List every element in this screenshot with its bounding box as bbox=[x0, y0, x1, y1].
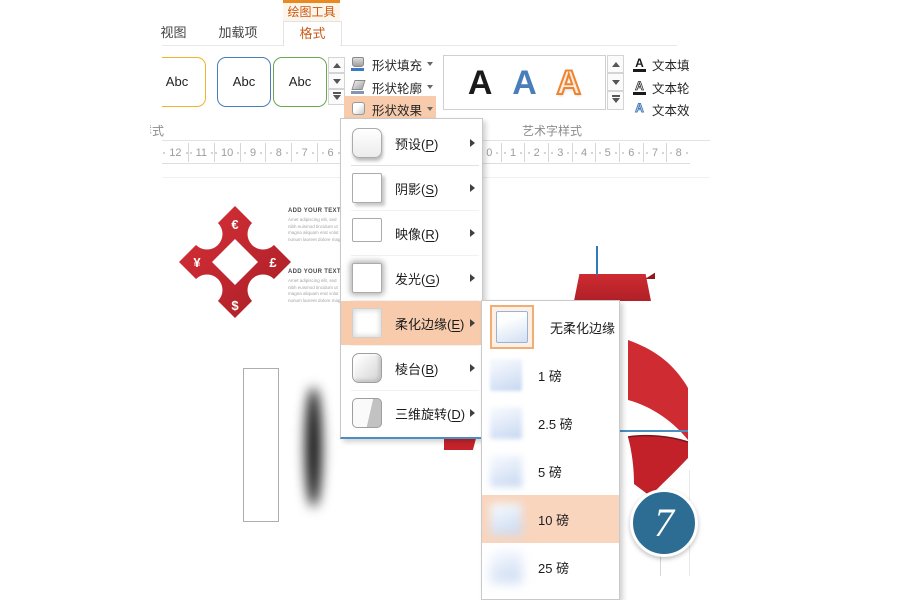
shape-outline-button[interactable]: 形状轮廓 bbox=[350, 76, 433, 98]
wordart-gallery-more-button[interactable] bbox=[607, 91, 624, 110]
shape-gallery-scroll-up[interactable] bbox=[328, 57, 345, 73]
shape-style-label: Abc bbox=[166, 74, 188, 89]
menu-item[interactable]: 柔化边缘(E) bbox=[341, 301, 482, 345]
ruler-number: 11 bbox=[188, 143, 214, 162]
submenu-arrow-icon bbox=[470, 139, 475, 147]
submenu-arrow-icon bbox=[470, 319, 475, 327]
wordart-gallery-scroll-down[interactable] bbox=[607, 73, 624, 91]
wordart-style-orange-outline[interactable]: A bbox=[557, 58, 582, 108]
soft-edge-option[interactable]: 1 磅 bbox=[482, 351, 619, 399]
ruler-number: 12 bbox=[163, 143, 188, 162]
submenu-arrow-icon bbox=[470, 409, 475, 417]
ruler-number: 9 bbox=[240, 143, 266, 162]
more-arrow-icon bbox=[612, 98, 620, 103]
soft-edge-option[interactable]: 5 磅 bbox=[482, 447, 619, 495]
text-fill-button[interactable]: A 文本填充 bbox=[632, 53, 690, 75]
wordart-gallery: A A A bbox=[443, 55, 606, 110]
soft-edge-option[interactable]: 25 磅 bbox=[482, 543, 619, 591]
ruler-number: 8 bbox=[666, 143, 690, 162]
up-arrow-icon bbox=[333, 63, 341, 68]
soft-edge-preview-icon bbox=[496, 311, 528, 343]
currency-ornament-shape[interactable]: € ¥ £ $ bbox=[176, 203, 294, 321]
dropdown-caret-icon bbox=[427, 107, 433, 111]
menu-item[interactable]: 阴影(S) bbox=[341, 166, 482, 210]
text-effects-icon: A bbox=[632, 101, 647, 117]
more-arrow-icon bbox=[333, 95, 341, 100]
rotation-3d-icon bbox=[352, 398, 382, 428]
soft-edge-option[interactable]: 10 磅 bbox=[482, 495, 619, 543]
step-number-badge[interactable]: 7 bbox=[630, 489, 698, 557]
ruler-number: 8 bbox=[265, 143, 291, 162]
shape-style-label: Abc bbox=[289, 74, 311, 89]
shape-style-preset-blue[interactable]: Abc bbox=[217, 57, 271, 107]
ruler-number: 10 bbox=[214, 143, 240, 162]
text-block[interactable]: ADD YOUR TEXT Amet adipiscing elit, sed … bbox=[288, 269, 346, 304]
shape-style-preset-yellow[interactable]: Abc bbox=[162, 57, 206, 107]
bevel-icon bbox=[352, 353, 382, 383]
ruler-right: 012345678 bbox=[478, 143, 690, 162]
shape-styles-group-label: 形状样式 bbox=[150, 123, 192, 139]
text-block[interactable]: ADD YOUR TEXT Amet adipiscing elit, sed … bbox=[288, 208, 346, 243]
euro-symbol: € bbox=[231, 217, 238, 232]
down-arrow-icon bbox=[333, 79, 341, 84]
tab-view[interactable]: 视图 bbox=[158, 21, 202, 45]
menu-item[interactable]: 棱台(B) bbox=[341, 346, 482, 390]
connector-line bbox=[596, 246, 598, 275]
soft-edge-preview-icon bbox=[490, 359, 522, 391]
guide-line bbox=[620, 430, 688, 432]
ruler-number: 6 bbox=[619, 143, 643, 162]
slide-text-blocks[interactable]: ADD YOUR TEXT Amet adipiscing elit, sed … bbox=[288, 208, 346, 330]
tab-addins[interactable]: 加载项 bbox=[206, 21, 270, 45]
shape-effects-menu: 预设(P) 阴影(S) 映像(R) 发光(G) 柔化边缘(E) bbox=[340, 118, 483, 439]
menu-item[interactable]: 发光(G) bbox=[341, 256, 482, 300]
text-outline-icon: A bbox=[632, 79, 647, 95]
yen-symbol: ¥ bbox=[193, 255, 201, 270]
ruler-number: 7 bbox=[291, 143, 317, 162]
shadow-icon bbox=[352, 173, 382, 203]
ruler-number: 3 bbox=[548, 143, 572, 162]
submenu-arrow-icon bbox=[470, 274, 475, 282]
dropdown-caret-icon bbox=[427, 85, 433, 89]
text-fill-icon: A bbox=[632, 56, 647, 72]
up-arrow-icon bbox=[612, 62, 620, 67]
soft-edged-bar-shape[interactable] bbox=[305, 387, 322, 507]
rectangle-outline-shape[interactable] bbox=[243, 368, 279, 522]
soft-edge-preview-icon bbox=[490, 455, 522, 487]
soft-edge-option[interactable]: 无柔化边缘 bbox=[482, 303, 619, 351]
ruler-number: 5 bbox=[595, 143, 619, 162]
soft-edges-submenu: 无柔化边缘 1 磅 2.5 磅 5 磅 10 磅 25 磅 bbox=[481, 300, 620, 600]
soft-edge-preview-icon bbox=[490, 503, 522, 535]
pound-symbol: £ bbox=[269, 255, 277, 270]
wordart-gallery-scroll-up[interactable] bbox=[607, 55, 624, 73]
step-number: 7 bbox=[654, 503, 674, 543]
shape-gallery-scroll-down[interactable] bbox=[328, 73, 345, 89]
shape-effects-icon bbox=[350, 101, 366, 117]
text-block-heading: ADD YOUR TEXT bbox=[288, 208, 346, 214]
text-outline-label: 文本轮廓 bbox=[652, 78, 690, 97]
shape-fill-label: 形状填充 bbox=[372, 55, 422, 74]
tab-format[interactable]: 格式 bbox=[283, 21, 342, 46]
down-arrow-icon bbox=[612, 80, 620, 85]
preset-icon bbox=[352, 128, 382, 158]
submenu-arrow-icon bbox=[470, 184, 475, 192]
shape-effects-button[interactable]: 形状效果 bbox=[350, 98, 433, 120]
ruler-number: 2 bbox=[524, 143, 548, 162]
shape-gallery-more-button[interactable] bbox=[328, 89, 345, 105]
menu-item[interactable]: 映像(R) bbox=[341, 211, 482, 255]
dropdown-caret-icon bbox=[427, 62, 433, 66]
text-outline-button[interactable]: A 文本轮廓 bbox=[632, 76, 690, 98]
ruler-number: 1 bbox=[501, 143, 525, 162]
ruler-number: 7 bbox=[643, 143, 667, 162]
tab-view-label: 视图 bbox=[160, 21, 186, 45]
wordart-style-black[interactable]: A bbox=[468, 58, 493, 108]
menu-item[interactable]: 预设(P) bbox=[341, 121, 482, 165]
soft-edges-icon bbox=[352, 308, 382, 338]
menu-item[interactable]: 三维旋转(D) bbox=[341, 391, 482, 435]
soft-edge-preview-icon bbox=[490, 407, 522, 439]
shape-outline-icon bbox=[350, 79, 366, 95]
text-effects-label: 文本效果 bbox=[652, 100, 690, 119]
selected-option-frame bbox=[490, 305, 534, 349]
ruler-left: 1211109876 bbox=[163, 143, 343, 162]
shape-fill-button[interactable]: 形状填充 bbox=[350, 53, 433, 75]
submenu-arrow-icon bbox=[470, 364, 475, 372]
shape-style-preset-green[interactable]: Abc bbox=[273, 57, 327, 107]
wordart-styles-group-label: 艺术字样式 bbox=[462, 123, 642, 139]
ruler-number: 4 bbox=[572, 143, 596, 162]
shape-outline-label: 形状轮廓 bbox=[372, 78, 422, 97]
glow-icon bbox=[352, 263, 382, 293]
text-fill-label: 文本填充 bbox=[652, 55, 690, 74]
reflection-icon bbox=[352, 218, 382, 242]
dollar-symbol: $ bbox=[231, 298, 239, 313]
submenu-arrow-icon bbox=[470, 229, 475, 237]
shape-effects-label: 形状效果 bbox=[372, 100, 422, 119]
text-block-heading: ADD YOUR TEXT bbox=[288, 269, 346, 275]
ribbon-fold-shadow bbox=[645, 271, 655, 279]
red-trapezoid-shape[interactable] bbox=[574, 274, 651, 301]
soft-edge-option[interactable]: 2.5 磅 bbox=[482, 399, 619, 447]
wordart-style-blue[interactable]: A bbox=[512, 58, 537, 108]
shape-fill-icon bbox=[350, 56, 366, 72]
soft-edge-preview-icon bbox=[490, 551, 522, 583]
shape-style-label: Abc bbox=[233, 74, 255, 89]
text-effects-button[interactable]: A 文本效果 bbox=[632, 98, 690, 120]
